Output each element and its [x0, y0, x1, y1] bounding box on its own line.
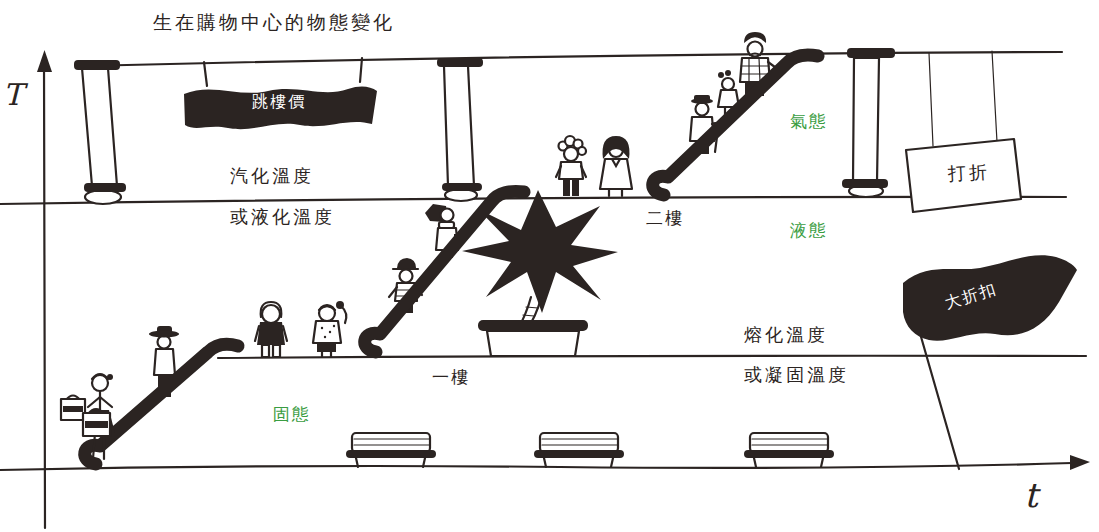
y-axis: [37, 50, 52, 528]
ceiling-line: [84, 52, 1062, 66]
melting-temp-line: [218, 356, 1086, 358]
vaporization-temp-label: 汽化溫度: [230, 167, 314, 185]
person-girl-coat: [600, 136, 632, 196]
liquid-state-label: 液態: [790, 222, 828, 239]
hand-drawn-illustration: [0, 0, 1099, 532]
bench: [346, 433, 436, 467]
y-axis-label: T: [3, 80, 23, 110]
diagram-title: 生在購物中心的物態變化: [153, 13, 395, 32]
melting-temp-label: 熔化溫度: [744, 326, 828, 344]
bench: [744, 433, 834, 467]
person-woman-dark-top: [255, 302, 287, 357]
column-left: [74, 60, 126, 204]
sale-banner-text: 跳樓價: [252, 94, 306, 110]
phase-change-mall-diagram: 生在購物中心的物態變化 T t 汽化溫度 或液化溫度 熔化溫度 或凝固溫度 二樓…: [0, 0, 1099, 532]
person-girl-ponytail: [313, 301, 346, 357]
discount-sign-text: 打折: [948, 163, 991, 183]
column-middle: [437, 58, 483, 201]
person-boy-curly: [556, 136, 586, 196]
discount-sign: [906, 51, 1021, 212]
solidification-temp-label: 或凝固溫度: [744, 366, 849, 384]
bench: [534, 433, 624, 467]
liquefaction-temp-label: 或液化溫度: [230, 208, 335, 226]
x-axis-label: t: [1024, 478, 1038, 512]
first-floor-label: 一樓: [432, 369, 470, 386]
solid-state-label: 固態: [273, 406, 311, 423]
gas-state-label: 氣態: [790, 113, 828, 130]
second-floor-label: 二樓: [646, 210, 684, 227]
planter: [478, 320, 588, 356]
column-right: [842, 48, 895, 197]
